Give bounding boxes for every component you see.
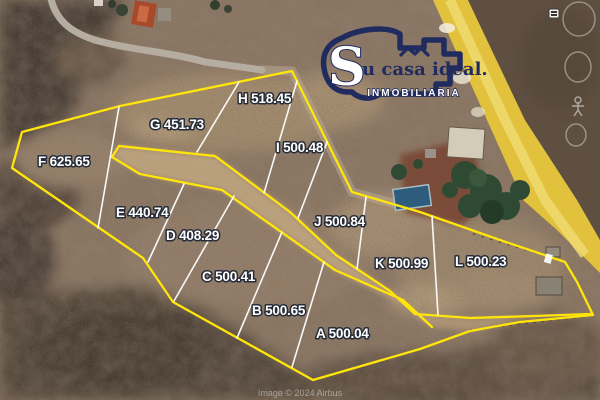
lot-label-c: C 500.41 (202, 269, 256, 284)
lot-label-j: J 500.84 (314, 214, 366, 229)
logo-initial: S (328, 37, 366, 98)
lot-label-a: A 500.04 (316, 326, 369, 341)
logo-name: u casa ideal. (362, 59, 488, 80)
lot-label-g: G 451.73 (150, 117, 205, 132)
lot-label-e: E 440.74 (116, 205, 169, 220)
building-roof (447, 127, 485, 159)
lot-label-d: D 408.29 (166, 228, 219, 243)
logo-subtitle: INMOBILIARIA (367, 88, 460, 99)
map-canvas[interactable]: F 625.65 G 451.73 H 518.45 I 500.48 E 44… (0, 0, 600, 400)
lot-label-f: F 625.65 (38, 154, 90, 169)
lot-label-l: L 500.23 (455, 254, 507, 269)
small-building-se (536, 277, 562, 295)
imagery-attribution: Image © 2024 Airbus (258, 388, 343, 398)
lot-label-i: I 500.48 (276, 140, 324, 155)
lot-label-k: K 500.99 (375, 256, 428, 271)
gray-roof-building (158, 8, 171, 21)
photo-marker-icon[interactable] (549, 9, 559, 18)
lot-label-h: H 518.45 (238, 91, 292, 106)
tree (116, 4, 128, 16)
small-structure (425, 149, 436, 158)
lot-label-b: B 500.65 (252, 303, 306, 318)
google-earth-satellite-view[interactable]: F 625.65 G 451.73 H 518.45 I 500.48 E 44… (0, 0, 600, 400)
